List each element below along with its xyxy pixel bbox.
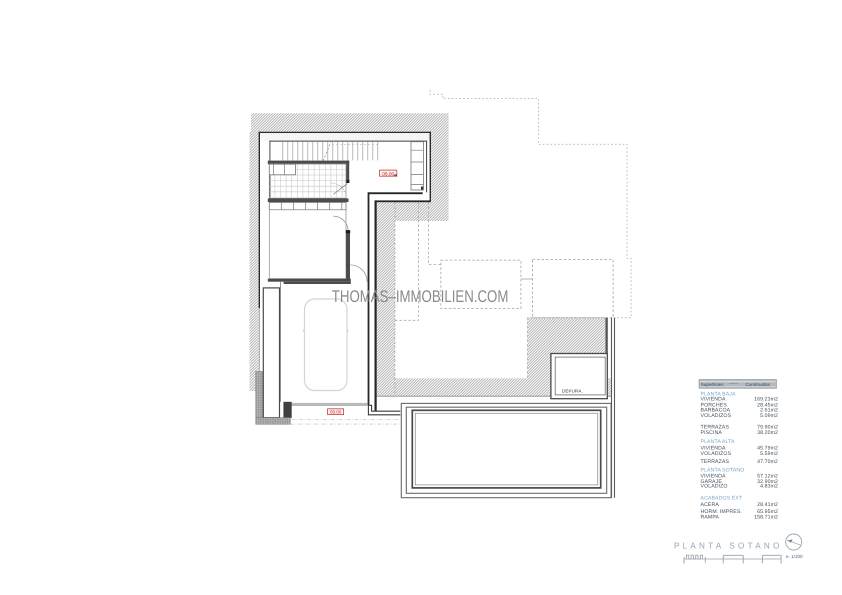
- svg-text:45.79m2: 45.79m2: [757, 445, 778, 451]
- svg-text:4.83m2: 4.83m2: [760, 484, 778, 490]
- svg-text:PLANTA ALTA: PLANTA ALTA: [701, 439, 735, 445]
- svg-text:VOLADIZOS: VOLADIZOS: [701, 451, 732, 457]
- svg-text:5: 5: [780, 561, 782, 565]
- svg-text:PLANTA SOTANO: PLANTA SOTANO: [701, 467, 745, 473]
- svg-text:BARBACOA: BARBACOA: [701, 408, 731, 414]
- svg-text:VOLADIZOS: VOLADIZOS: [701, 413, 732, 419]
- svg-text:1: 1: [704, 561, 706, 565]
- svg-text:3: 3: [742, 561, 744, 565]
- svg-text:PORCHES: PORCHES: [701, 402, 727, 408]
- svg-text:5.09m2: 5.09m2: [760, 413, 778, 419]
- svg-text:57.12m2: 57.12m2: [757, 474, 778, 480]
- svg-text:ACERA: ACERA: [701, 502, 719, 508]
- svg-text:09.00: 09.00: [330, 410, 342, 415]
- svg-text:5.59m2: 5.59m2: [760, 451, 778, 457]
- svg-text:47.70m2: 47.70m2: [757, 459, 778, 465]
- svg-text:65.95m2: 65.95m2: [757, 509, 778, 515]
- svg-text:VOLADIZO: VOLADIZO: [701, 484, 728, 490]
- svg-text:2: 2: [722, 561, 724, 565]
- svg-text:Construidas: Construidas: [746, 382, 771, 387]
- svg-text:PISCINA: PISCINA: [701, 430, 722, 436]
- svg-text:TERRAZAS: TERRAZAS: [701, 425, 730, 431]
- svg-text:2.61m2: 2.61m2: [760, 408, 778, 414]
- svg-text:38.20m2: 38.20m2: [757, 430, 778, 436]
- svg-text:06.00: 06.00: [382, 171, 394, 177]
- svg-text:TERRAZAS: TERRAZAS: [701, 459, 730, 465]
- svg-text:79.90m2: 79.90m2: [757, 425, 778, 431]
- svg-text:VIVIENDA: VIVIENDA: [701, 445, 726, 451]
- svg-text:Superficies: Superficies: [701, 382, 724, 387]
- svg-text:e. 1/100: e. 1/100: [786, 554, 803, 559]
- svg-text:VIVIENDA: VIVIENDA: [701, 474, 726, 480]
- svg-text:RAMPA: RAMPA: [701, 515, 720, 521]
- svg-text:158.71m2: 158.71m2: [754, 515, 778, 521]
- svg-text:PLANTA SOTANO: PLANTA SOTANO: [674, 540, 783, 550]
- svg-text:HORM. IMPRES.: HORM. IMPRES.: [701, 509, 742, 515]
- svg-text:0: 0: [683, 561, 685, 565]
- svg-text:DEPURA.: DEPURA.: [562, 388, 583, 393]
- svg-text:ACABADOS EXT: ACABADOS EXT: [701, 496, 743, 502]
- svg-text:169.23m2: 169.23m2: [754, 396, 778, 402]
- svg-text:4: 4: [761, 561, 763, 565]
- svg-text:THOMAS–IMMOBILIEN.COM: THOMAS–IMMOBILIEN.COM: [332, 287, 509, 306]
- svg-text:VIVIENDA: VIVIENDA: [701, 396, 726, 402]
- svg-text:28.41m2: 28.41m2: [757, 502, 778, 508]
- svg-text:28.45m2: 28.45m2: [757, 402, 778, 408]
- svg-text:——: ——: [729, 381, 739, 386]
